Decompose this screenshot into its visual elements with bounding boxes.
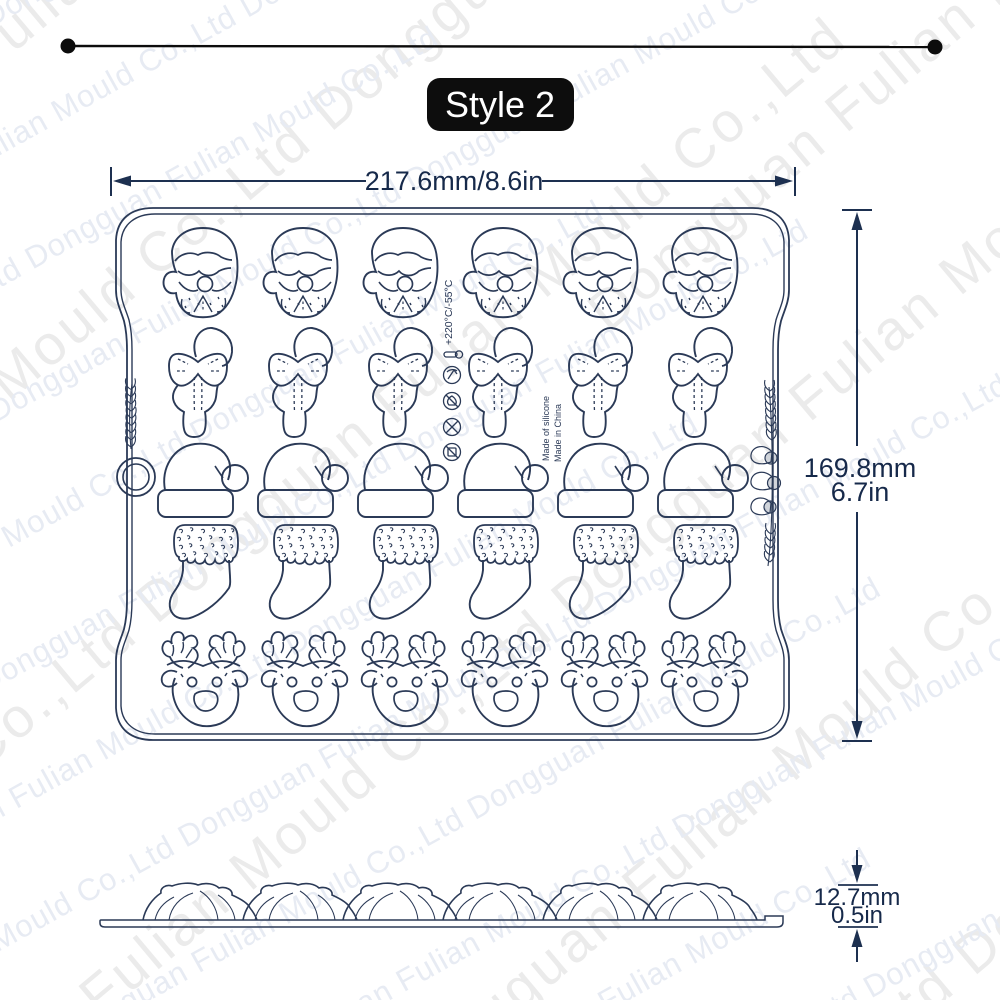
svg-text:Made in China: Made in China: [553, 404, 563, 462]
svg-text:6.7in: 6.7in: [831, 477, 890, 507]
svg-text:0.5in: 0.5in: [831, 902, 883, 929]
svg-text:+220°C/-55°C: +220°C/-55°C: [443, 279, 455, 345]
svg-text:Style 2: Style 2: [445, 84, 555, 125]
svg-text:217.6mm/8.6in: 217.6mm/8.6in: [365, 166, 544, 196]
svg-text:Made of silicone: Made of silicone: [541, 396, 551, 461]
